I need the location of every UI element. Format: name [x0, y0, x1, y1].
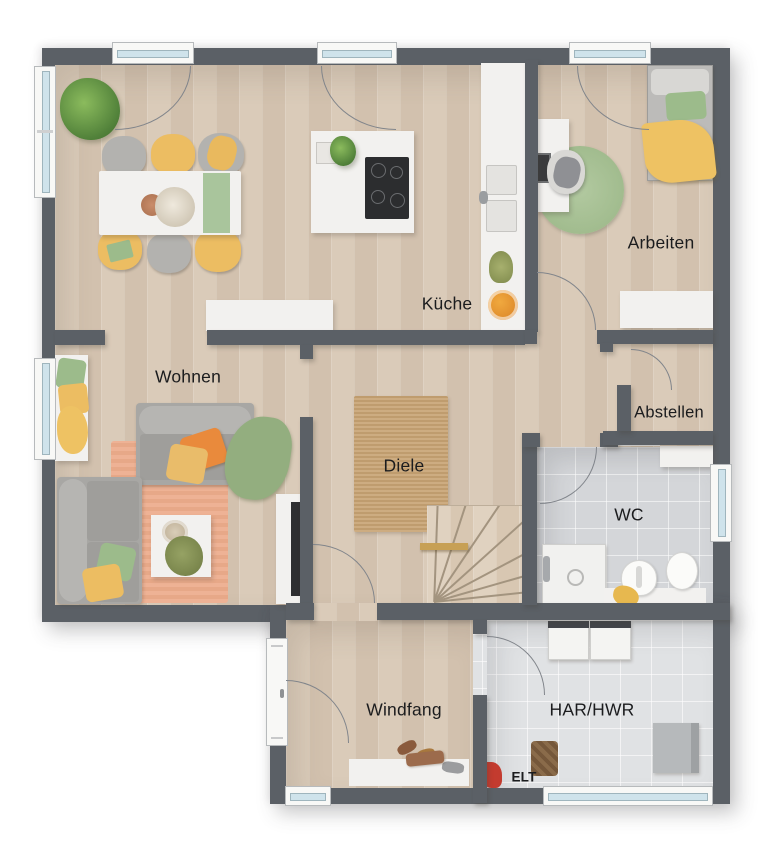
window-wc-right: [710, 464, 732, 542]
window-har-bottom: [543, 786, 713, 806]
bed-pillow-green: [665, 91, 707, 122]
window-dining-left: [34, 66, 56, 198]
window-windfang-bottom: [285, 786, 331, 806]
dining-chair: [195, 230, 241, 272]
entry-door: [266, 638, 288, 746]
sideboard-dining: [206, 300, 333, 331]
dining-chair: [147, 233, 191, 273]
wall-wc-north-west: [522, 433, 540, 447]
cooktop-burner: [371, 163, 386, 178]
cooktop-burner: [390, 193, 405, 208]
wall-windfang-har-north: [473, 620, 487, 634]
toilet-lid-line: [636, 566, 642, 588]
window-mullion: [37, 130, 53, 133]
wall-stub-diele: [300, 345, 313, 359]
room-label-arbeiten: Arbeiten: [628, 233, 695, 254]
wall-office-south-west-jamb: [525, 330, 537, 344]
window-glass: [718, 469, 726, 537]
sofa-cushion: [87, 481, 139, 541]
room-label-kueche: Küche: [422, 294, 473, 315]
washing-machine-back: [548, 621, 589, 628]
dining-chair: [102, 136, 146, 176]
plant-dining-corner: [60, 78, 120, 140]
wc-cabinet: [660, 446, 713, 467]
shower-faucet: [543, 556, 550, 582]
window-wohnen-left: [34, 358, 56, 460]
wall-abstellen-jamb: [600, 343, 613, 352]
window-office-top: [569, 42, 651, 64]
entry-door-panel-line: [271, 645, 283, 647]
kitchen-sink: [486, 165, 517, 195]
doorway-windfang-har: [473, 634, 487, 695]
wall-wohnen-diele: [300, 417, 313, 605]
door-handle: [280, 689, 284, 698]
window-glass: [290, 793, 326, 801]
wall-office-south: [597, 330, 713, 344]
wall-abstellen-west: [617, 385, 631, 431]
room-label-wc: WC: [614, 505, 644, 526]
window-glass: [548, 793, 708, 801]
pillow-yellow: [165, 443, 209, 485]
faucet: [479, 191, 488, 204]
wall-kitchen-south: [207, 330, 525, 345]
window-glass: [42, 363, 50, 455]
table-runner-green: [203, 173, 230, 233]
centerpiece-flowers: [155, 187, 195, 227]
plant-island: [330, 136, 356, 166]
stair-step: [433, 505, 511, 602]
plant-coffee-table: [165, 536, 203, 576]
room-label-wohnen: Wohnen: [155, 367, 221, 388]
wall-wc-west: [522, 433, 537, 605]
heat-pump-side: [691, 723, 699, 773]
staircase: [427, 505, 522, 605]
sofa-back: [139, 406, 251, 436]
dryer-back: [590, 621, 631, 628]
dining-chair: [151, 134, 195, 174]
room-label-windfang: Windfang: [366, 700, 442, 721]
window-glass: [322, 50, 392, 58]
room-label-elt: ELT: [511, 770, 536, 785]
wall-windfang-north-west: [286, 603, 314, 620]
wall-windfang-har-south: [473, 695, 487, 803]
floor-plan: Wohnen Küche Arbeiten Abstellen Diele WC…: [0, 0, 775, 849]
stair-step: [433, 505, 477, 602]
kitchen-sink: [486, 200, 517, 232]
stair-handrail: [420, 543, 468, 550]
bidet: [666, 552, 698, 590]
doorway-diele-windfang: [313, 603, 377, 621]
window-glass: [117, 50, 189, 58]
cooktop-burner: [390, 166, 403, 179]
room-label-diele: Diele: [384, 456, 425, 477]
wall-abstellen-south: [603, 431, 713, 445]
window-dining-top: [112, 42, 194, 64]
wall-windfang-north-east: [377, 603, 730, 620]
window-kitchen-top: [317, 42, 397, 64]
cooktop-burner: [371, 190, 385, 204]
decor-branches: [489, 251, 513, 283]
sofa-back: [59, 479, 87, 602]
room-label-har-hwr: HAR/HWR: [549, 700, 634, 721]
pillow-yellow: [81, 563, 124, 603]
room-label-abstellen: Abstellen: [634, 404, 704, 423]
fruit-bowl: [488, 290, 518, 320]
sideboard-office: [620, 291, 713, 328]
shower-drain: [567, 569, 584, 586]
wall-dining-wohnen-stub: [55, 330, 105, 345]
window-glass: [574, 50, 646, 58]
entry-door-panel-line: [271, 737, 283, 739]
